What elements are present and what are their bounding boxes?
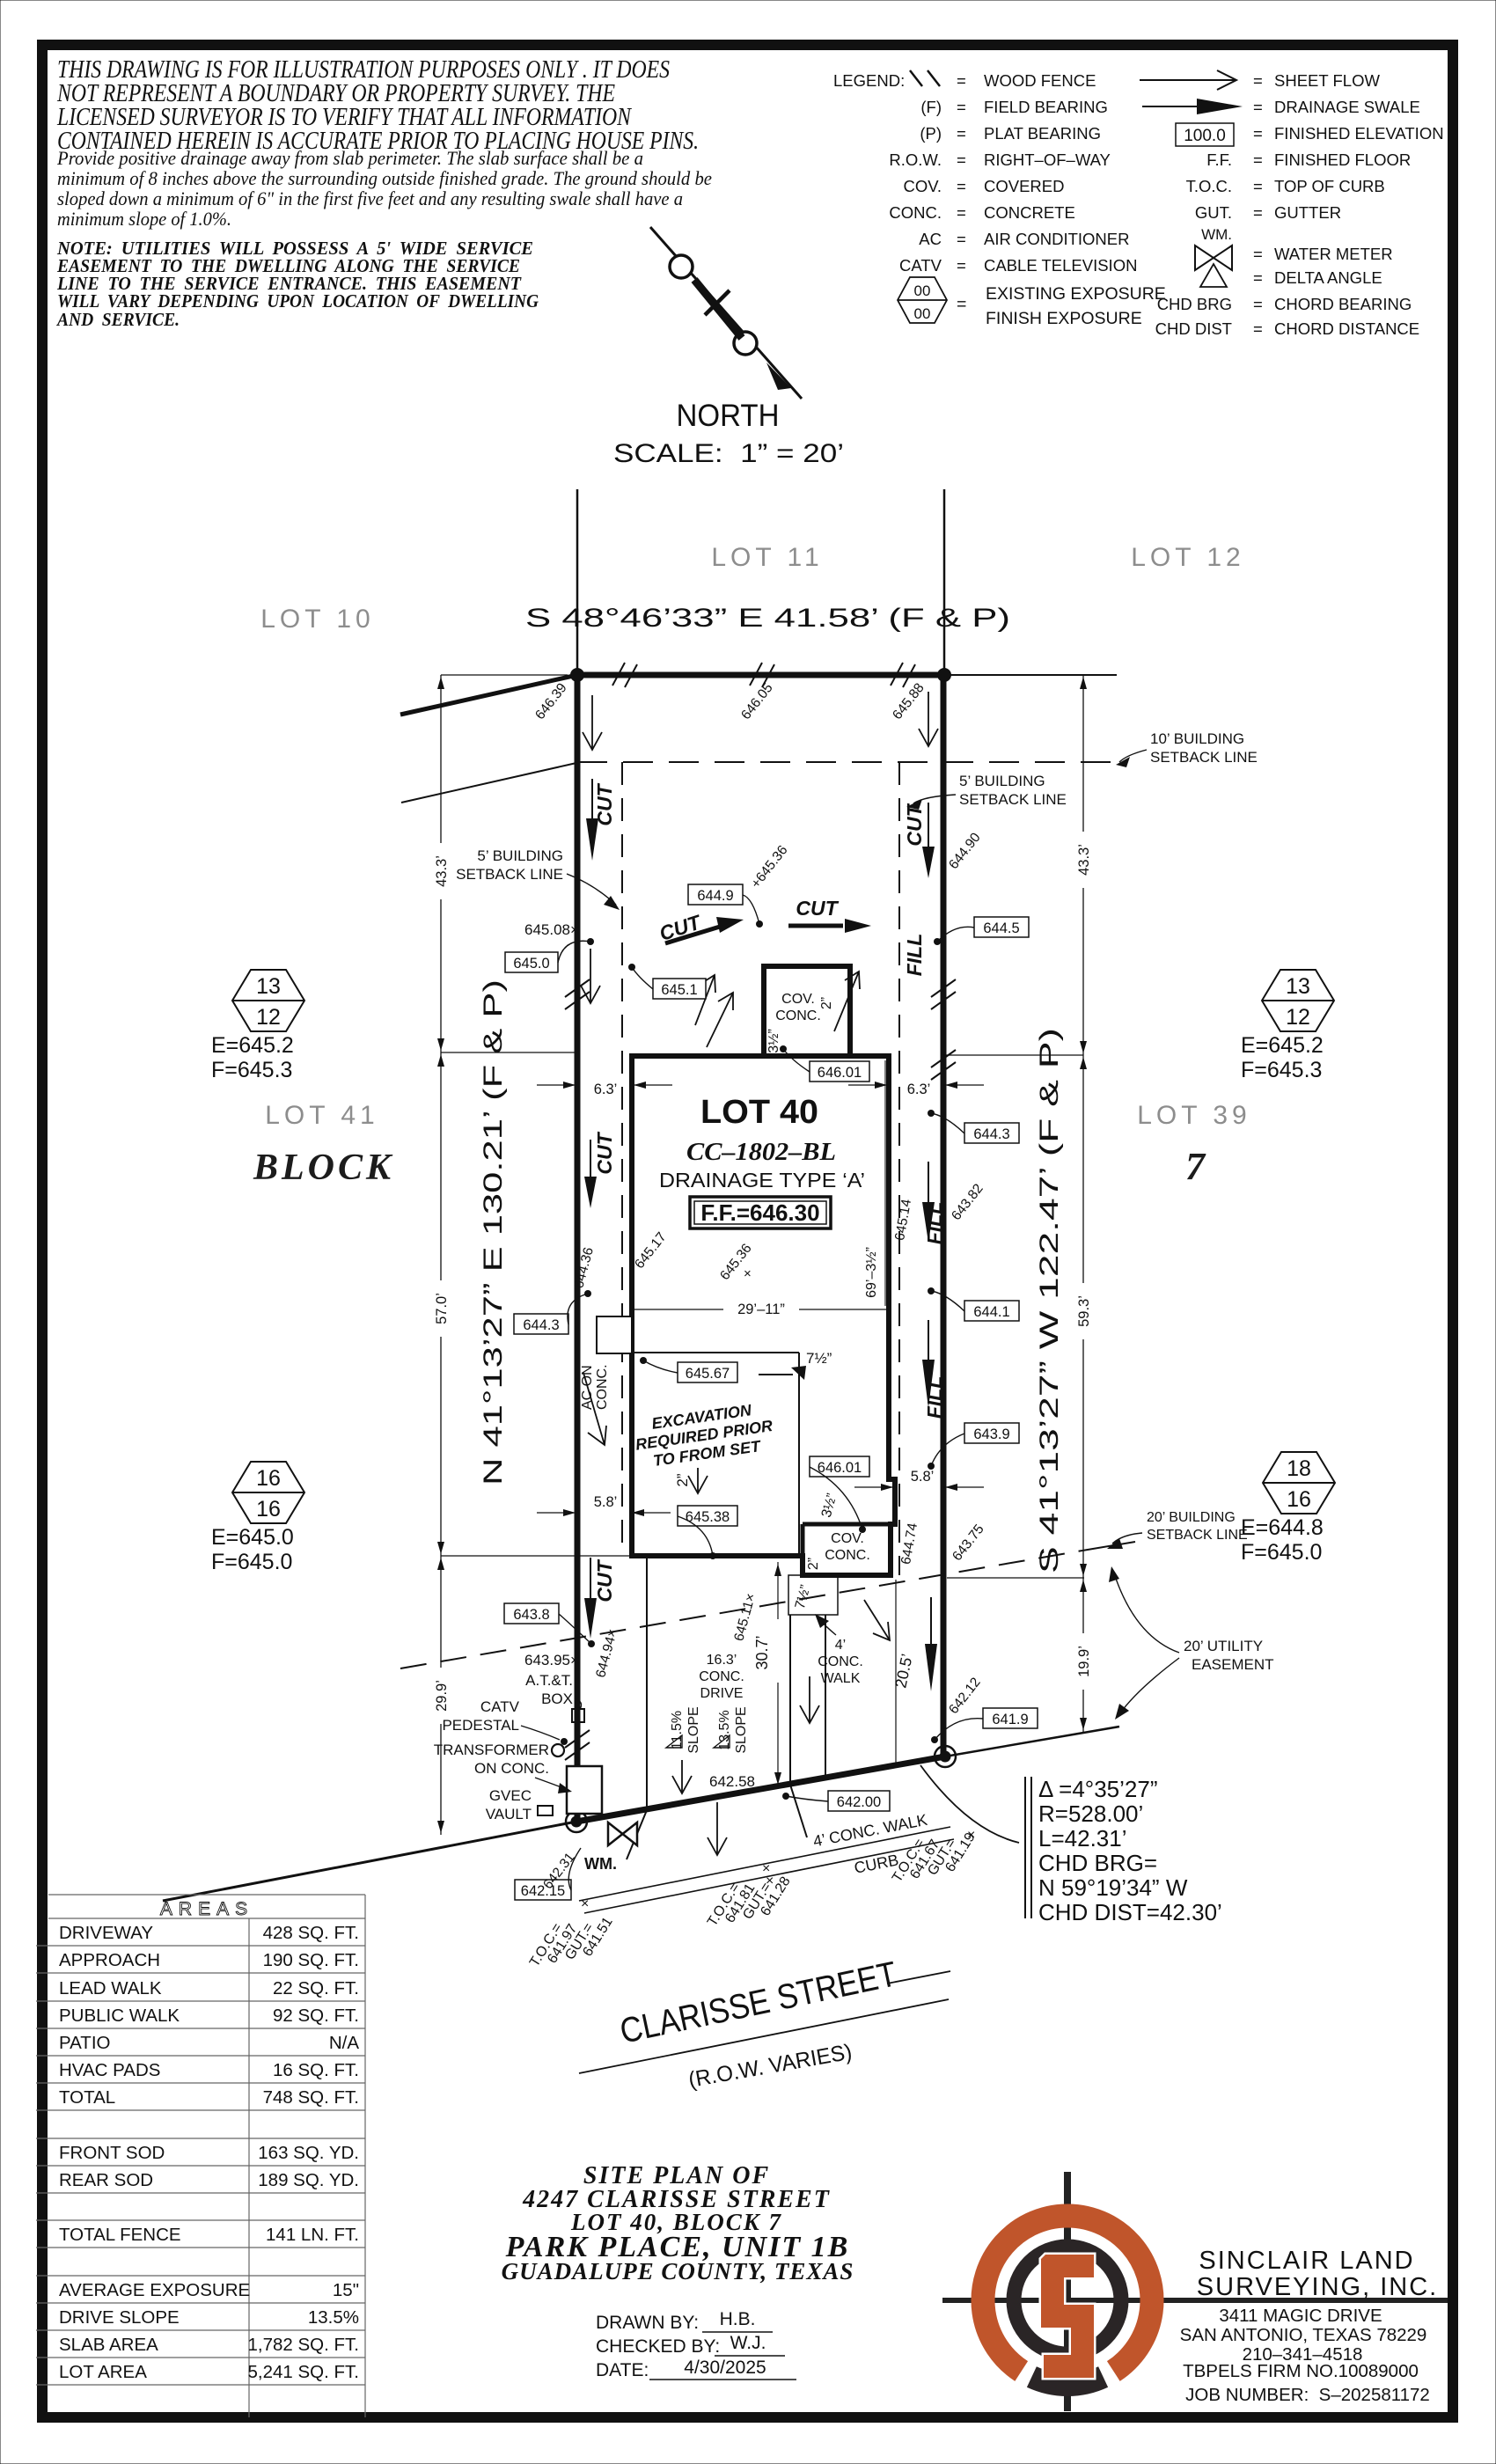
- svg-text:3½”: 3½”: [766, 1029, 781, 1053]
- svg-text:PATIO: PATIO: [59, 2033, 110, 2053]
- svg-text:TOTAL FENCE: TOTAL FENCE: [59, 2225, 181, 2245]
- svg-text:FINISHED FLOOR: FINISHED FLOOR: [1274, 150, 1411, 169]
- svg-text:6.3’: 6.3’: [907, 1082, 931, 1097]
- svg-text:43.3’: 43.3’: [1076, 844, 1092, 876]
- svg-text:CONC.: CONC.: [775, 1008, 821, 1023]
- svg-text:CONC.: CONC.: [595, 1364, 610, 1410]
- svg-text:sloped down a minimum of 6" in: sloped down a minimum of 6" in the first…: [57, 187, 683, 209]
- svg-text:644.5: 644.5: [983, 920, 1019, 936]
- svg-text:190 SQ. FT.: 190 SQ. FT.: [263, 1950, 359, 1970]
- svg-text:5,241 SQ. FT.: 5,241 SQ. FT.: [248, 2362, 359, 2382]
- svg-text:646.01: 646.01: [818, 1460, 862, 1476]
- svg-text:CATV: CATV: [480, 1698, 520, 1715]
- svg-text:(P): (P): [920, 124, 942, 143]
- svg-text:SURVEYING, INC.: SURVEYING, INC.: [1197, 2273, 1438, 2301]
- svg-text:=: =: [1253, 203, 1263, 222]
- svg-text:=: =: [957, 150, 966, 169]
- svg-text:16: 16: [1287, 1487, 1311, 1512]
- svg-text:18: 18: [1287, 1456, 1311, 1481]
- svg-text:CONC.: CONC.: [818, 1654, 863, 1669]
- svg-text:LEAD WALK: LEAD WALK: [59, 1978, 162, 1998]
- svg-text:LOT AREA: LOT AREA: [59, 2362, 147, 2382]
- svg-text:AND SERVICE.: AND SERVICE.: [55, 309, 180, 330]
- svg-text:20’ UTILITY: 20’ UTILITY: [1184, 1638, 1263, 1654]
- svg-text:CHORD DISTANCE: CHORD DISTANCE: [1274, 319, 1419, 338]
- svg-text:R=528.00’: R=528.00’: [1038, 1800, 1143, 1827]
- svg-text:F=645.3: F=645.3: [211, 1058, 292, 1082]
- svg-text:CHORD BEARING: CHORD BEARING: [1274, 295, 1412, 313]
- svg-text:2”: 2”: [819, 997, 834, 1009]
- svg-text:DRIVE SLOPE: DRIVE SLOPE: [59, 2307, 180, 2328]
- svg-text:644.74: 644.74: [898, 1522, 920, 1566]
- svg-text:FILL: FILL: [903, 934, 926, 977]
- svg-text:=: =: [1253, 268, 1263, 287]
- svg-text:13: 13: [256, 974, 281, 999]
- svg-text:BOX: BOX: [541, 1690, 573, 1707]
- svg-text:FIELD BEARING: FIELD BEARING: [984, 98, 1108, 116]
- svg-text:WATER METER: WATER METER: [1274, 245, 1393, 263]
- svg-text:CABLE TELEVISION: CABLE TELEVISION: [984, 256, 1137, 275]
- svg-text:=: =: [957, 71, 966, 90]
- svg-text:LOT 10: LOT 10: [260, 605, 375, 634]
- svg-text:SETBACK LINE: SETBACK LINE: [1147, 1528, 1248, 1543]
- svg-text:=: =: [957, 256, 966, 275]
- svg-text:LOT 40: LOT 40: [700, 1094, 818, 1131]
- svg-text:F.F.=646.30: F.F.=646.30: [700, 1199, 819, 1226]
- svg-text:646.39: 646.39: [532, 680, 570, 722]
- svg-text:DRAINAGE SWALE: DRAINAGE SWALE: [1274, 98, 1420, 116]
- svg-text:641.9: 641.9: [992, 1712, 1028, 1727]
- svg-text:644.1: 644.1: [973, 1304, 1009, 1320]
- svg-text:30.7’: 30.7’: [753, 1635, 771, 1669]
- svg-text:=: =: [957, 295, 966, 314]
- svg-text:minimum slope of 1.0%.: minimum slope of 1.0%.: [57, 208, 231, 230]
- svg-text:minimum of 8 inches above the: minimum of 8 inches above the surroundin…: [57, 167, 712, 189]
- svg-text:F=645.0: F=645.0: [211, 1550, 292, 1574]
- svg-text:141 LN. FT.: 141 LN. FT.: [266, 2225, 359, 2245]
- svg-text:F=645.3: F=645.3: [1241, 1058, 1322, 1082]
- svg-text:=: =: [1253, 150, 1263, 169]
- svg-text:SINCLAIR LAND: SINCLAIR LAND: [1199, 2247, 1414, 2275]
- svg-text:12: 12: [256, 1005, 281, 1030]
- svg-text:Provide positive drainage away: Provide positive drainage away from slab…: [56, 147, 643, 169]
- svg-text:00: 00: [914, 282, 931, 299]
- svg-text:642.58: 642.58: [709, 1773, 755, 1790]
- svg-text:13: 13: [1286, 974, 1310, 999]
- svg-text:SLOPE: SLOPE: [734, 1706, 749, 1753]
- svg-text:7: 7: [1185, 1145, 1206, 1188]
- svg-text:642.12: 642.12: [946, 1675, 984, 1717]
- svg-text:7½”: 7½”: [806, 1350, 832, 1367]
- svg-text:COV.: COV.: [781, 992, 815, 1007]
- svg-text:SHEET FLOW: SHEET FLOW: [1274, 71, 1380, 90]
- svg-text:CONC.: CONC.: [889, 203, 942, 222]
- svg-text:SETBACK LINE: SETBACK LINE: [456, 866, 563, 883]
- svg-text:16.3’: 16.3’: [707, 1653, 737, 1668]
- svg-text:DATE:: DATE:: [596, 2360, 649, 2380]
- svg-text:16: 16: [256, 1497, 281, 1522]
- svg-text:189 SQ. YD.: 189 SQ. YD.: [258, 2170, 359, 2190]
- svg-text:2”: 2”: [806, 1558, 821, 1570]
- svg-text:HVAC PADS: HVAC PADS: [59, 2060, 160, 2080]
- svg-text:5.8’: 5.8’: [911, 1469, 935, 1485]
- svg-text:×: ×: [581, 1896, 589, 1911]
- svg-text:CHECKED BY:: CHECKED BY:: [596, 2336, 720, 2357]
- svg-text:COV.: COV.: [903, 177, 942, 195]
- svg-text:E=645.0: E=645.0: [211, 1525, 294, 1550]
- svg-text:×: ×: [744, 1266, 752, 1281]
- svg-text:TRANSFORMER: TRANSFORMER: [434, 1742, 549, 1758]
- svg-text:DRAWN BY:: DRAWN BY:: [596, 2313, 699, 2333]
- svg-text:3411 MAGIC DRIVE: 3411 MAGIC DRIVE: [1219, 2306, 1382, 2326]
- svg-text:=: =: [1253, 177, 1263, 195]
- svg-text:BLOCK: BLOCK: [253, 1148, 394, 1188]
- svg-text:F=645.0: F=645.0: [1241, 1540, 1322, 1565]
- svg-text:645.08×: 645.08×: [524, 921, 579, 938]
- svg-text:GUADALUPE COUNTY, TEXAS: GUADALUPE COUNTY, TEXAS: [502, 2258, 854, 2284]
- svg-text:TOTAL: TOTAL: [59, 2087, 115, 2108]
- svg-text:CUT: CUT: [796, 897, 839, 920]
- svg-text:16: 16: [256, 1466, 281, 1491]
- svg-text:CHD BRG: CHD BRG: [1157, 295, 1232, 313]
- svg-text:00: 00: [914, 305, 931, 322]
- svg-text:645.14: 645.14: [892, 1198, 914, 1242]
- svg-text:16 SQ. FT.: 16 SQ. FT.: [273, 2060, 359, 2080]
- svg-text:CUT: CUT: [593, 1558, 616, 1602]
- svg-text:43.3’: 43.3’: [434, 855, 450, 887]
- svg-text:=: =: [1253, 124, 1263, 143]
- svg-text:WM.: WM.: [1201, 226, 1232, 243]
- svg-text:643.9: 643.9: [973, 1426, 1009, 1442]
- svg-text:CHD BRG=: CHD BRG=: [1038, 1850, 1157, 1876]
- svg-text:=: =: [957, 203, 966, 222]
- svg-text:29.9’: 29.9’: [434, 1680, 450, 1712]
- svg-text:4/30/2025: 4/30/2025: [684, 2358, 766, 2378]
- svg-text:COV.: COV.: [831, 1531, 864, 1546]
- svg-text:TOP OF CURB: TOP OF CURB: [1274, 177, 1385, 195]
- svg-text:REAR SOD: REAR SOD: [59, 2170, 153, 2190]
- svg-text:57.0’: 57.0’: [434, 1293, 450, 1324]
- svg-text:6.3’: 6.3’: [594, 1082, 618, 1097]
- svg-text:CUT: CUT: [593, 1131, 616, 1174]
- svg-text:EXISTING EXPOSURE: EXISTING EXPOSURE: [986, 284, 1166, 304]
- svg-text:=: =: [1253, 98, 1263, 116]
- svg-text:=: =: [957, 230, 966, 248]
- svg-text:=: =: [1253, 71, 1263, 90]
- svg-text:59.3’: 59.3’: [1076, 1295, 1092, 1327]
- svg-text:69’–3½”: 69’–3½”: [864, 1247, 879, 1298]
- svg-text:EASEMENT: EASEMENT: [1192, 1656, 1274, 1673]
- svg-text:PLAT BEARING: PLAT BEARING: [984, 124, 1101, 143]
- svg-text:CUT: CUT: [903, 803, 926, 846]
- svg-text:748 SQ. FT.: 748 SQ. FT.: [263, 2087, 359, 2108]
- svg-text:CONC.: CONC.: [699, 1669, 744, 1684]
- svg-text:FINISHED ELEVATION: FINISHED ELEVATION: [1274, 124, 1444, 143]
- svg-text:=: =: [1253, 295, 1263, 313]
- svg-text:643.8: 643.8: [513, 1607, 549, 1623]
- svg-text:COVERED: COVERED: [984, 177, 1065, 195]
- svg-text:13.5%: 13.5%: [308, 2307, 359, 2328]
- svg-text:92 SQ. FT.: 92 SQ. FT.: [273, 2006, 359, 2026]
- svg-text:WM.: WM.: [584, 1855, 617, 1873]
- svg-text:SETBACK LINE: SETBACK LINE: [959, 791, 1067, 808]
- svg-text:LOT 41: LOT 41: [265, 1101, 379, 1130]
- svg-text:643.95×: 643.95×: [524, 1652, 579, 1668]
- svg-text:428 SQ. FT.: 428 SQ. FT.: [263, 1923, 359, 1943]
- svg-text:PUBLIC WALK: PUBLIC WALK: [59, 2006, 180, 2026]
- svg-text:LOT 39: LOT 39: [1137, 1101, 1251, 1130]
- svg-text:7½”: 7½”: [793, 1583, 814, 1610]
- svg-text:WOOD FENCE: WOOD FENCE: [984, 71, 1096, 90]
- svg-text:DRIVEWAY: DRIVEWAY: [59, 1923, 153, 1943]
- svg-text:SLOPE: SLOPE: [686, 1706, 701, 1753]
- svg-text:N 41°13’27” E 130.21’ (F & P): N 41°13’27” E 130.21’ (F & P): [479, 979, 508, 1485]
- svg-text:10’ BUILDING: 10’ BUILDING: [1150, 730, 1244, 747]
- svg-text:643.75: 643.75: [950, 1522, 987, 1564]
- svg-text:SAN ANTONIO, TEXAS 78229: SAN ANTONIO, TEXAS 78229: [1180, 2325, 1427, 2345]
- svg-text:=: =: [1253, 245, 1263, 263]
- svg-text:29’–11”: 29’–11”: [737, 1302, 785, 1317]
- svg-text:DRAINAGE TYPE ‘A’: DRAINAGE TYPE ‘A’: [659, 1169, 865, 1192]
- svg-text:N 59°19’34” W: N 59°19’34” W: [1038, 1874, 1188, 1901]
- svg-text:5.8’: 5.8’: [594, 1494, 618, 1510]
- svg-text:=: =: [957, 177, 966, 195]
- svg-text:GUT.: GUT.: [1195, 203, 1232, 222]
- svg-text:LOT 12: LOT 12: [1131, 543, 1245, 572]
- svg-text:E=645.2: E=645.2: [1241, 1033, 1324, 1058]
- svg-text:644.9: 644.9: [697, 888, 733, 904]
- svg-text:100.0: 100.0: [1184, 127, 1226, 145]
- svg-text:5’ BUILDING: 5’ BUILDING: [959, 773, 1045, 789]
- svg-text:CC–1802–BL: CC–1802–BL: [686, 1139, 836, 1166]
- svg-text:CATV: CATV: [899, 256, 942, 275]
- svg-text:AVERAGE EXPOSURE: AVERAGE EXPOSURE: [59, 2280, 250, 2300]
- svg-text:FINISH EXPOSURE: FINISH EXPOSURE: [986, 309, 1142, 328]
- svg-text:645.88: 645.88: [890, 680, 928, 722]
- svg-text:5’ BUILDING: 5’ BUILDING: [477, 847, 563, 864]
- svg-text:644.90: 644.90: [946, 830, 984, 872]
- svg-text:SLAB AREA: SLAB AREA: [59, 2335, 158, 2355]
- svg-text:644.94×: 644.94×: [593, 1627, 620, 1679]
- svg-text:GVEC: GVEC: [489, 1787, 532, 1804]
- svg-text:NORTH: NORTH: [677, 399, 780, 433]
- svg-text:WALK: WALK: [821, 1671, 861, 1686]
- svg-text:(F): (F): [920, 98, 942, 116]
- svg-text:646.05: 646.05: [738, 680, 776, 722]
- svg-text:646.01: 646.01: [818, 1065, 862, 1081]
- svg-text:12: 12: [1286, 1005, 1310, 1030]
- svg-text:AC: AC: [919, 230, 942, 248]
- svg-text:AIR CONDITIONER: AIR CONDITIONER: [984, 230, 1129, 248]
- svg-text:SETBACK LINE: SETBACK LINE: [1150, 749, 1258, 766]
- svg-text:1,782 SQ. FT.: 1,782 SQ. FT.: [248, 2335, 359, 2355]
- svg-text:R.O.W.: R.O.W.: [889, 150, 942, 169]
- svg-text:645.0: 645.0: [513, 956, 549, 972]
- svg-text:FRONT SOD: FRONT SOD: [59, 2143, 165, 2163]
- svg-text:DELTA ANGLE: DELTA ANGLE: [1274, 268, 1382, 287]
- svg-text:642.00: 642.00: [837, 1794, 881, 1810]
- svg-text:CHD DIST: CHD DIST: [1155, 319, 1232, 338]
- svg-text:645.17: 645.17: [632, 1229, 670, 1272]
- svg-text:644.3: 644.3: [523, 1317, 559, 1333]
- svg-text:645.1: 645.1: [661, 982, 697, 998]
- svg-text:15": 15": [333, 2280, 359, 2300]
- svg-text:19.9’: 19.9’: [1076, 1646, 1092, 1677]
- svg-text:E=645.2: E=645.2: [211, 1033, 294, 1058]
- svg-text:643.82: 643.82: [949, 1181, 986, 1223]
- svg-text:GUTTER: GUTTER: [1274, 203, 1341, 222]
- svg-text:Δ =4°35’27”: Δ =4°35’27”: [1038, 1776, 1157, 1802]
- svg-text:CHD DIST=42.30’: CHD DIST=42.30’: [1038, 1899, 1222, 1925]
- svg-text:4’: 4’: [835, 1638, 846, 1653]
- svg-text:RIGHT–OF–WAY: RIGHT–OF–WAY: [984, 150, 1111, 169]
- svg-text:ON CONC.: ON CONC.: [474, 1760, 549, 1777]
- svg-text:+645.36: +645.36: [748, 843, 790, 891]
- svg-text:S 48°46’33” E 41.58’ (F & P): S 48°46’33” E 41.58’ (F & P): [525, 604, 1010, 633]
- svg-text:20’ BUILDING: 20’ BUILDING: [1147, 1510, 1236, 1525]
- svg-text:W.J.: W.J.: [730, 2333, 766, 2353]
- svg-text:L=42.31’: L=42.31’: [1038, 1825, 1126, 1852]
- svg-text:LEGEND:: LEGEND:: [833, 71, 905, 90]
- svg-text:DRIVE: DRIVE: [700, 1686, 744, 1701]
- svg-text:LOT 11: LOT 11: [711, 543, 823, 572]
- svg-text:S 41°13’27” W 122.47’ (F & P): S 41°13’27” W 122.47’ (F & P): [1035, 1028, 1064, 1573]
- svg-text:CONCRETE: CONCRETE: [984, 203, 1075, 222]
- svg-text:22 SQ. FT.: 22 SQ. FT.: [273, 1978, 359, 1998]
- svg-text:SCALE: 1” = 20’: SCALE: 1” = 20’: [613, 439, 844, 468]
- svg-text:AREAS: AREAS: [160, 1899, 253, 1919]
- svg-text:H.B.: H.B.: [720, 2309, 756, 2329]
- svg-text:=: =: [1253, 319, 1263, 338]
- svg-text:644.3: 644.3: [973, 1126, 1009, 1142]
- svg-text:2”: 2”: [674, 1473, 691, 1486]
- svg-text:163 SQ. YD.: 163 SQ. YD.: [258, 2143, 359, 2163]
- svg-text:A.T.&T.: A.T.&T.: [525, 1672, 573, 1689]
- svg-text:T.O.C.: T.O.C.: [1186, 177, 1232, 195]
- svg-text:JOB NUMBER: S–202581172: JOB NUMBER: S–202581172: [1185, 2385, 1430, 2405]
- svg-text:645.67: 645.67: [686, 1366, 730, 1382]
- svg-text:=: =: [957, 98, 966, 116]
- svg-text:645.11×: 645.11×: [731, 1592, 759, 1643]
- svg-text:E=644.8: E=644.8: [1241, 1515, 1324, 1540]
- svg-text:VAULT: VAULT: [486, 1806, 532, 1822]
- svg-text:3½”: 3½”: [819, 1492, 840, 1519]
- svg-text:=: =: [957, 124, 966, 143]
- svg-text:APPROACH: APPROACH: [59, 1950, 160, 1970]
- svg-text:CONC.: CONC.: [825, 1548, 870, 1563]
- svg-text:PEDESTAL: PEDESTAL: [442, 1717, 519, 1734]
- svg-text:F.F.: F.F.: [1206, 150, 1232, 169]
- svg-text:N/A: N/A: [329, 2033, 360, 2053]
- svg-text:TBPELS FIRM NO.10089000: TBPELS FIRM NO.10089000: [1183, 2361, 1419, 2381]
